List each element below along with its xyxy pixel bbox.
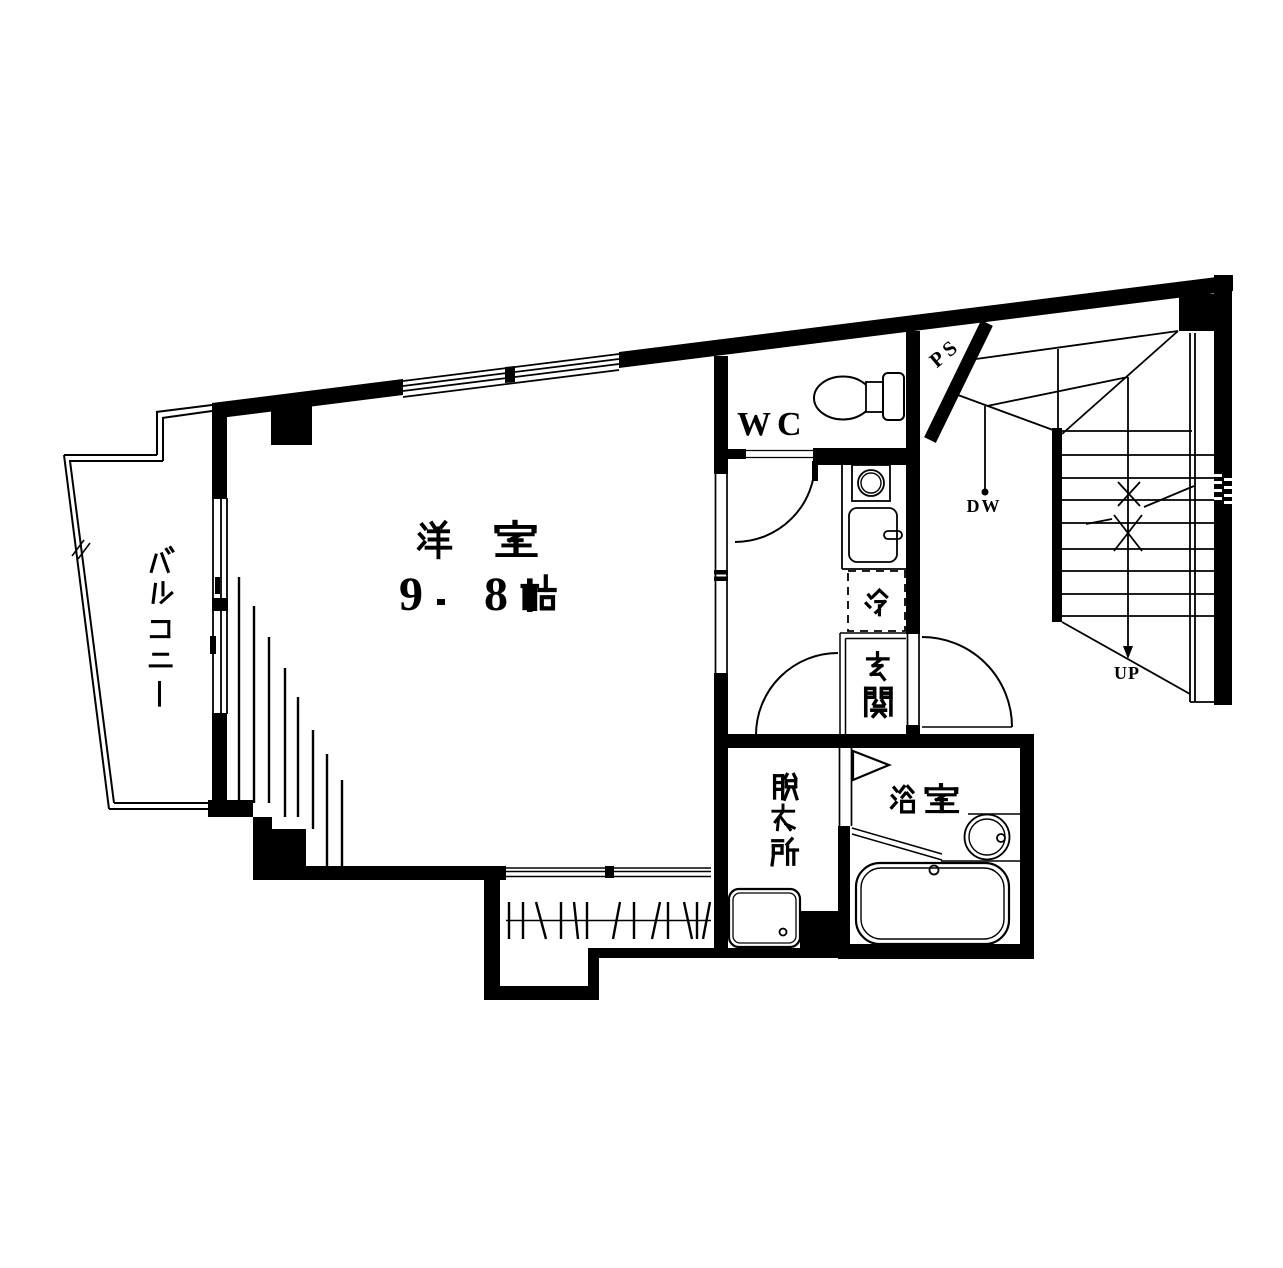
svg-text:8: 8 [484, 568, 508, 621]
svg-text:9: 9 [399, 568, 423, 621]
svg-text:DW: DW [967, 496, 1002, 516]
svg-text:WC: WC [737, 406, 808, 443]
svg-text:UP: UP [1114, 663, 1140, 683]
